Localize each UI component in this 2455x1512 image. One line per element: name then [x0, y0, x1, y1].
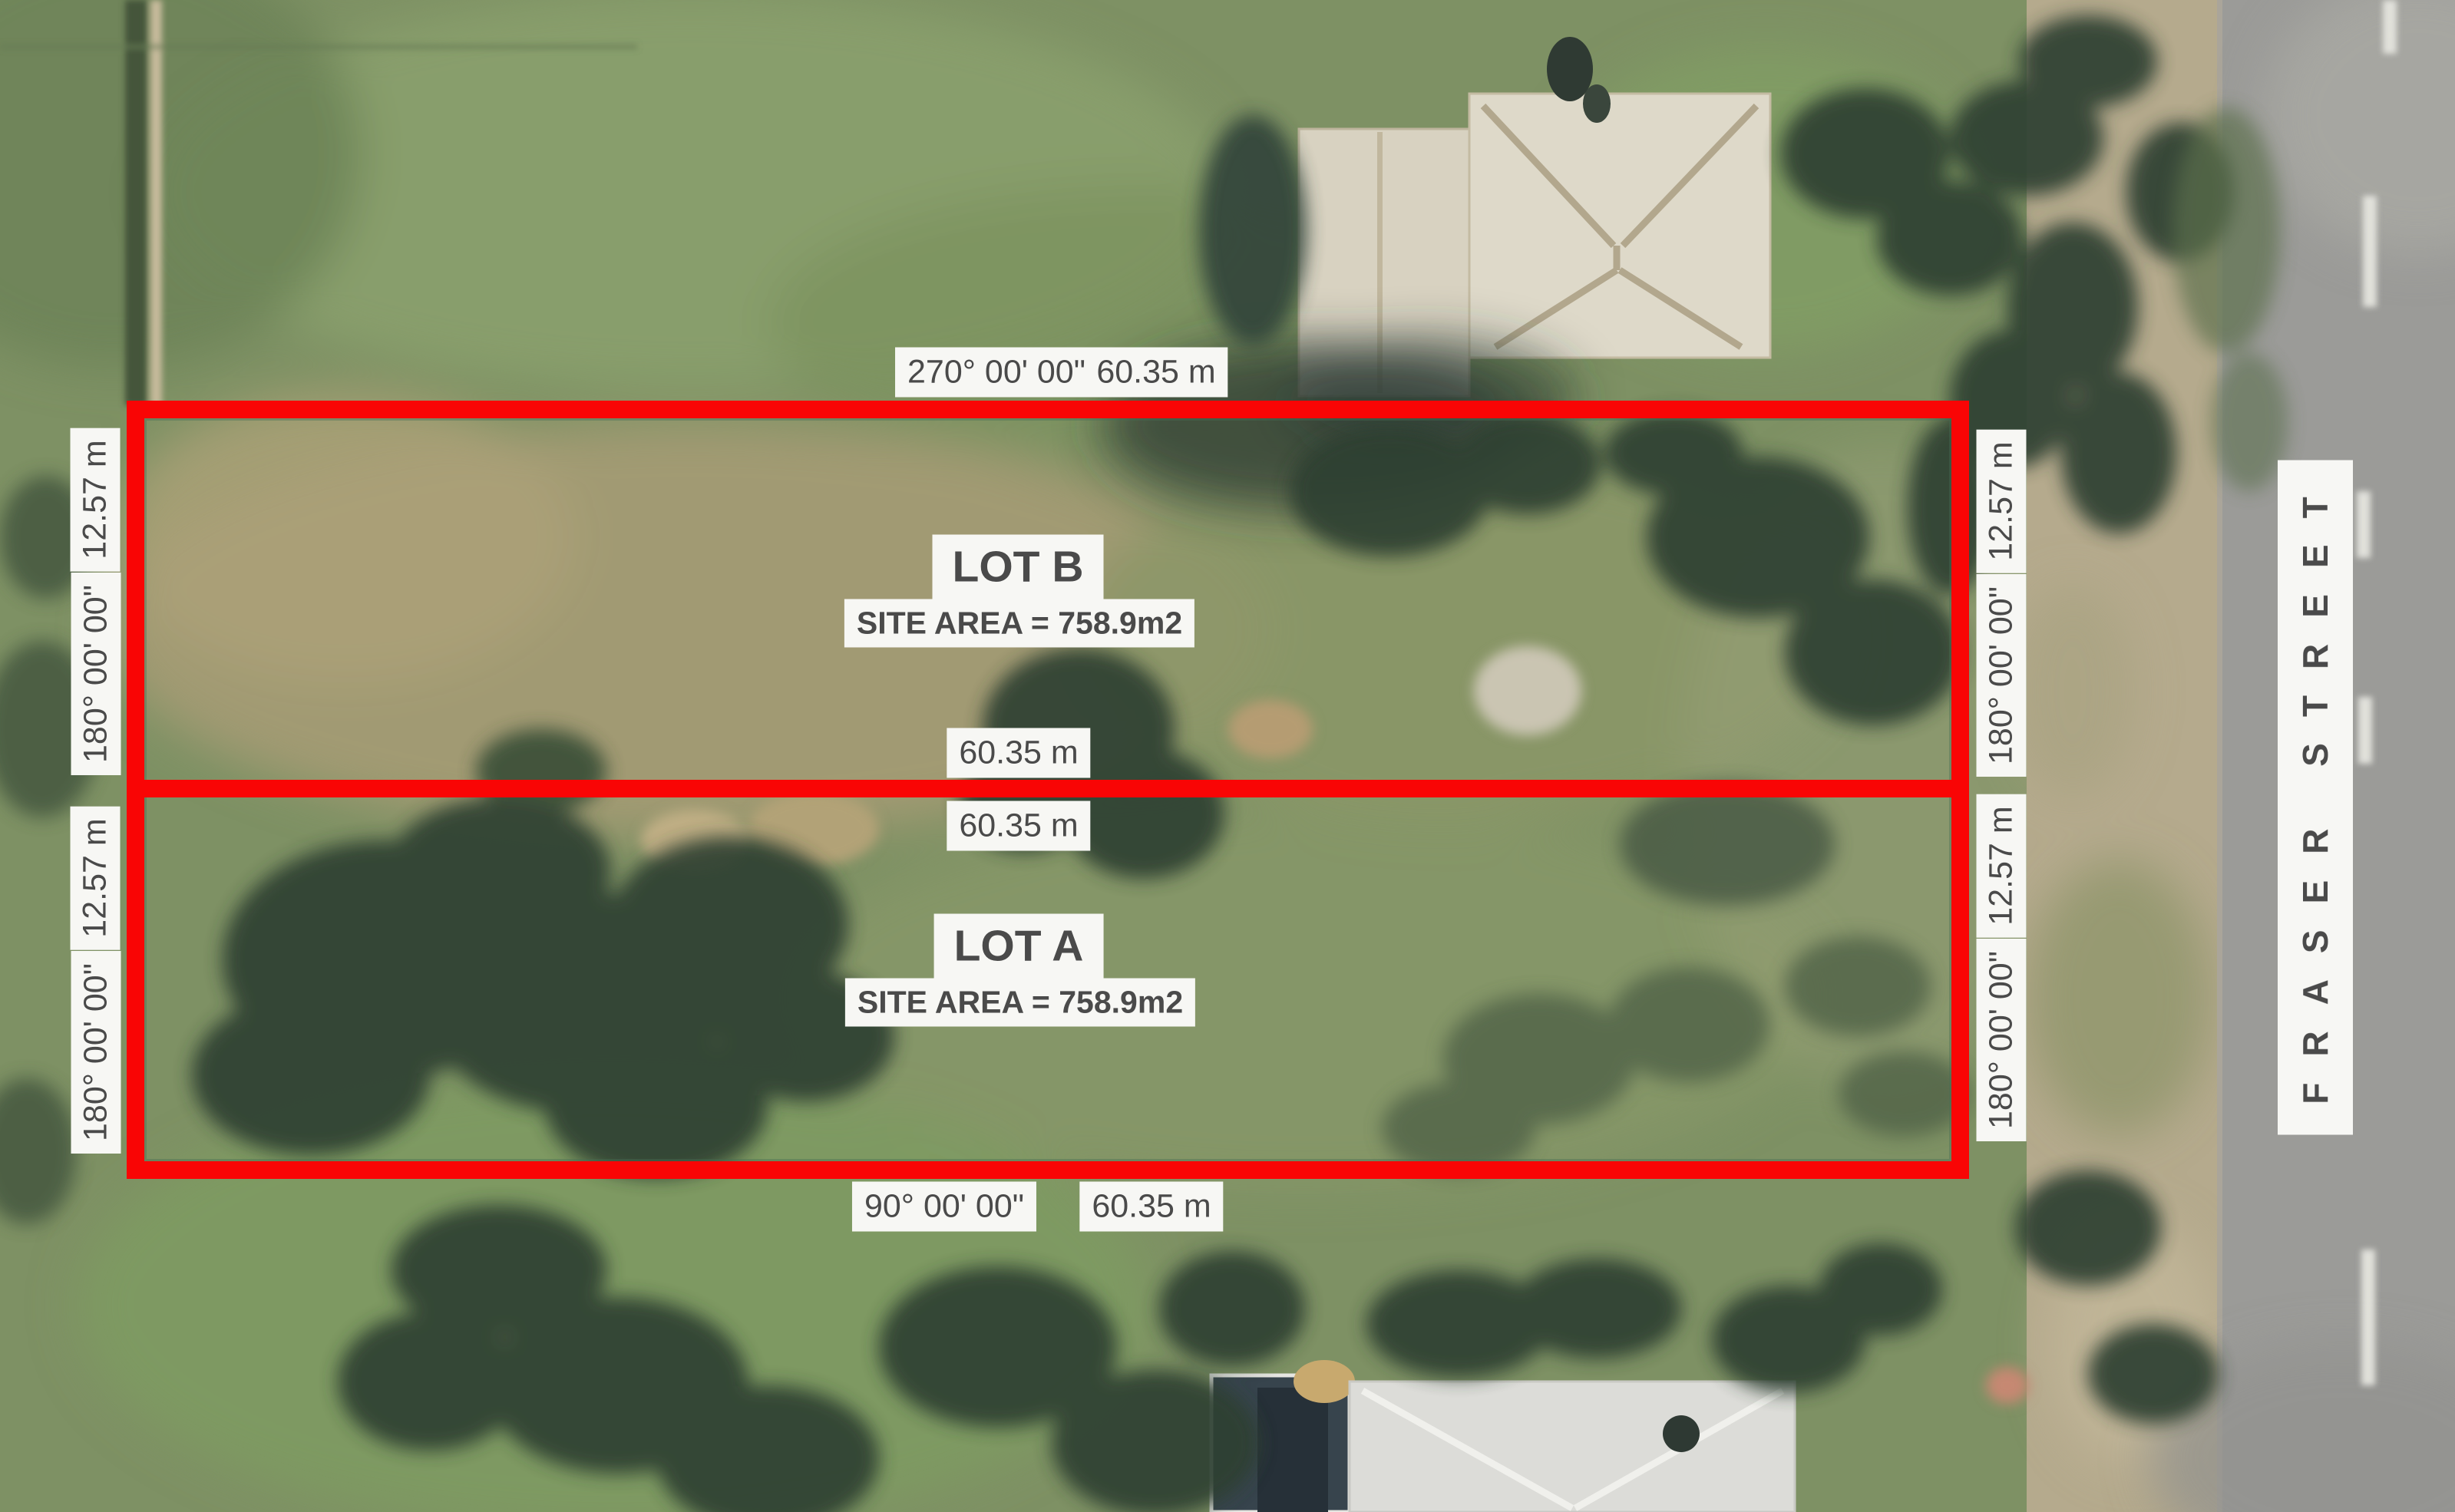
bearing-label-left-lot-a: 180° 00' 00": [71, 951, 121, 1154]
width-label-left-lot-b: 12.57 m: [71, 428, 121, 571]
bearing-label-right-lot-a: 180° 00' 00": [1977, 939, 2027, 1141]
bearing-label-top: 270° 00' 00": [895, 348, 1098, 398]
distance-label-mid-upper: 60.35 m: [947, 728, 1090, 778]
bottom-house: [1211, 1360, 1795, 1512]
street-name-label: FRASER STREET: [2278, 460, 2353, 1134]
width-label-left-lot-a: 12.57 m: [71, 806, 121, 949]
lot-b-site-area: SITE AREA = 758.9m2: [844, 599, 1194, 648]
bearing-label-right-lot-b: 180° 00' 00": [1977, 574, 2027, 777]
bearing-label-bottom: 90° 00' 00": [852, 1182, 1036, 1232]
lot-a-title: LOT A: [934, 914, 1104, 979]
lot-b-title: LOT B: [933, 535, 1104, 600]
lot-divider-line: [127, 780, 1969, 797]
bearing-label-left-lot-b: 180° 00' 00": [71, 573, 121, 775]
lot-a-site-area: SITE AREA = 758.9m2: [845, 979, 1195, 1027]
distance-label-mid-lower: 60.35 m: [947, 801, 1090, 851]
aerial-site-plan: 270° 00' 00" 60.35 m LOT B SITE AREA = 7…: [0, 0, 2455, 1512]
distance-label-top: 60.35 m: [1084, 348, 1227, 398]
distance-label-bottom: 60.35 m: [1079, 1182, 1223, 1232]
width-label-right-lot-a: 12.57 m: [1977, 794, 2027, 937]
width-label-right-lot-b: 12.57 m: [1977, 429, 2027, 573]
